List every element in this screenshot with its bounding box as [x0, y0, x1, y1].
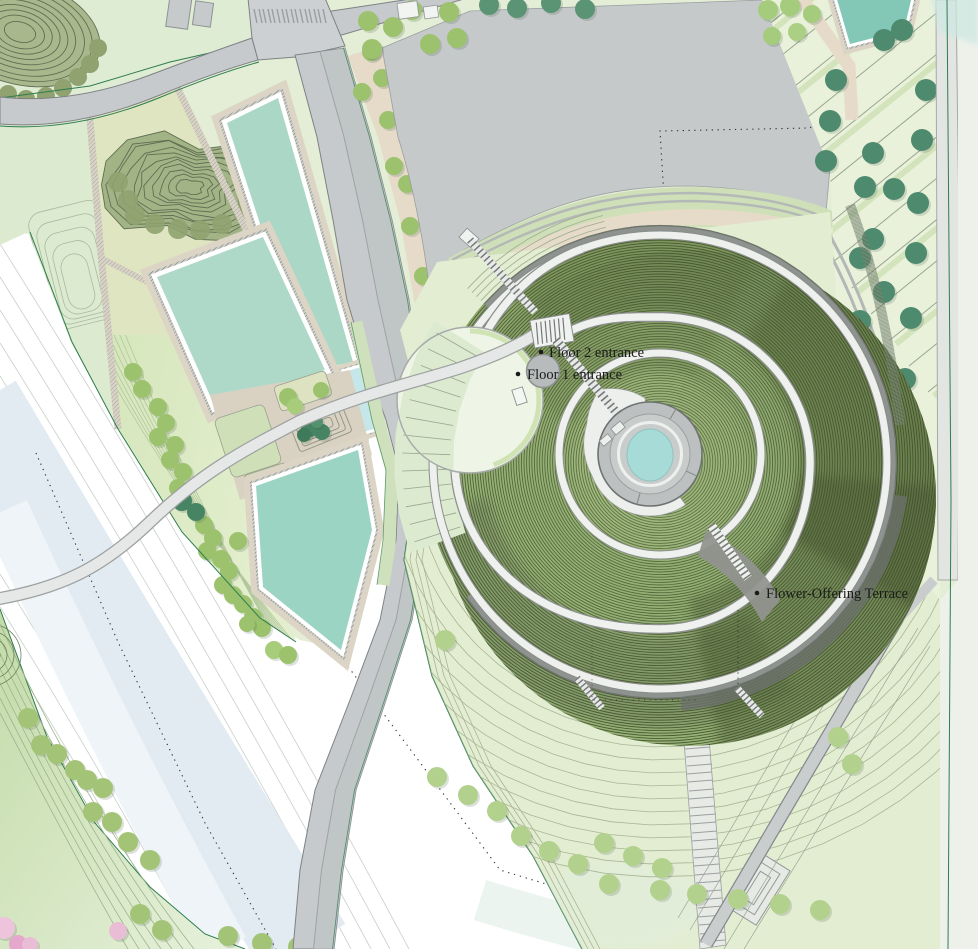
svg-text:Floor 2 entrance: Floor 2 entrance	[549, 345, 644, 361]
svg-text:Flower-Offering Terrace: Flower-Offering Terrace	[766, 586, 908, 602]
svg-text:Floor 1 entrance: Floor 1 entrance	[527, 367, 622, 383]
